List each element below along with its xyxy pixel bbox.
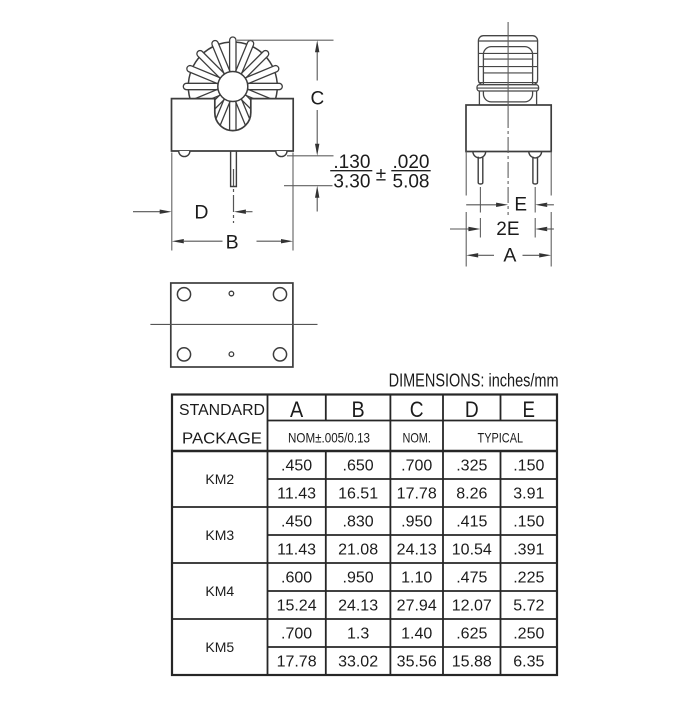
svg-text:15.24: 15.24 bbox=[277, 598, 317, 615]
svg-text:D: D bbox=[465, 397, 479, 422]
svg-text:3.91: 3.91 bbox=[513, 486, 544, 503]
svg-text:E: E bbox=[514, 195, 527, 216]
svg-text:.450: .450 bbox=[281, 458, 312, 475]
svg-text:.475: .475 bbox=[456, 570, 487, 587]
svg-text:E: E bbox=[523, 397, 536, 422]
svg-text:10.54: 10.54 bbox=[452, 542, 492, 559]
svg-text:TYPICAL: TYPICAL bbox=[478, 430, 524, 446]
svg-text:.130: .130 bbox=[333, 152, 370, 173]
svg-text:KM4: KM4 bbox=[205, 583, 234, 599]
svg-text:.020: .020 bbox=[393, 152, 430, 173]
svg-text:11.43: 11.43 bbox=[277, 486, 316, 503]
svg-text:.700: .700 bbox=[281, 626, 312, 643]
svg-text:.415: .415 bbox=[456, 514, 487, 531]
svg-text:.830: .830 bbox=[343, 514, 374, 531]
svg-text:2E: 2E bbox=[496, 219, 519, 240]
svg-text:NOM±.005/0.13: NOM±.005/0.13 bbox=[288, 430, 370, 446]
svg-text:.325: .325 bbox=[456, 458, 487, 475]
svg-text:.625: .625 bbox=[456, 626, 487, 643]
svg-text:±: ± bbox=[376, 165, 386, 186]
svg-text:17.78: 17.78 bbox=[277, 654, 317, 671]
svg-text:17.78: 17.78 bbox=[397, 486, 437, 503]
svg-text:B: B bbox=[226, 232, 239, 254]
svg-text:1.40: 1.40 bbox=[401, 626, 432, 643]
svg-text:.650: .650 bbox=[343, 458, 374, 475]
svg-text:.150: .150 bbox=[513, 458, 544, 475]
svg-text:8.26: 8.26 bbox=[456, 486, 487, 503]
svg-text:NOM.: NOM. bbox=[402, 430, 431, 446]
svg-text:.600: .600 bbox=[281, 570, 312, 587]
svg-text:35.56: 35.56 bbox=[397, 654, 437, 671]
svg-text:16.51: 16.51 bbox=[338, 486, 378, 503]
svg-text:5.08: 5.08 bbox=[393, 172, 430, 193]
svg-text:.250: .250 bbox=[513, 626, 544, 643]
svg-text:KM5: KM5 bbox=[205, 639, 234, 655]
svg-text:D: D bbox=[194, 202, 208, 224]
svg-text:21.08: 21.08 bbox=[338, 542, 378, 559]
svg-text:.150: .150 bbox=[513, 514, 544, 531]
svg-text:1.3: 1.3 bbox=[347, 626, 369, 643]
svg-text:.950: .950 bbox=[401, 514, 432, 531]
svg-text:15.88: 15.88 bbox=[452, 654, 492, 671]
svg-text:1.10: 1.10 bbox=[401, 570, 432, 587]
svg-text:33.02: 33.02 bbox=[338, 654, 378, 671]
svg-text:.950: .950 bbox=[343, 570, 374, 587]
svg-text:.450: .450 bbox=[281, 514, 312, 531]
svg-text:KM2: KM2 bbox=[205, 471, 234, 487]
svg-text:5.72: 5.72 bbox=[513, 598, 544, 615]
svg-text:C: C bbox=[410, 397, 424, 422]
svg-text:11.43: 11.43 bbox=[277, 542, 316, 559]
svg-text:KM3: KM3 bbox=[205, 527, 234, 543]
svg-text:24.13: 24.13 bbox=[397, 542, 437, 559]
svg-text:12.07: 12.07 bbox=[452, 598, 492, 615]
svg-text:3.30: 3.30 bbox=[333, 172, 370, 193]
svg-text:A: A bbox=[290, 397, 303, 422]
svg-text:.225: .225 bbox=[513, 570, 544, 587]
svg-text:C: C bbox=[311, 89, 325, 110]
svg-text:.700: .700 bbox=[401, 458, 432, 475]
svg-text:.391: .391 bbox=[513, 542, 544, 559]
svg-text:STANDARD: STANDARD bbox=[179, 402, 265, 419]
svg-text:24.13: 24.13 bbox=[338, 598, 378, 615]
svg-text:A: A bbox=[503, 245, 516, 267]
svg-text:27.94: 27.94 bbox=[397, 598, 437, 615]
svg-text:PACKAGE: PACKAGE bbox=[182, 430, 262, 447]
svg-text:6.35: 6.35 bbox=[513, 654, 544, 671]
svg-text:DIMENSIONS: inches/mm: DIMENSIONS: inches/mm bbox=[389, 371, 559, 391]
svg-text:B: B bbox=[352, 397, 365, 422]
